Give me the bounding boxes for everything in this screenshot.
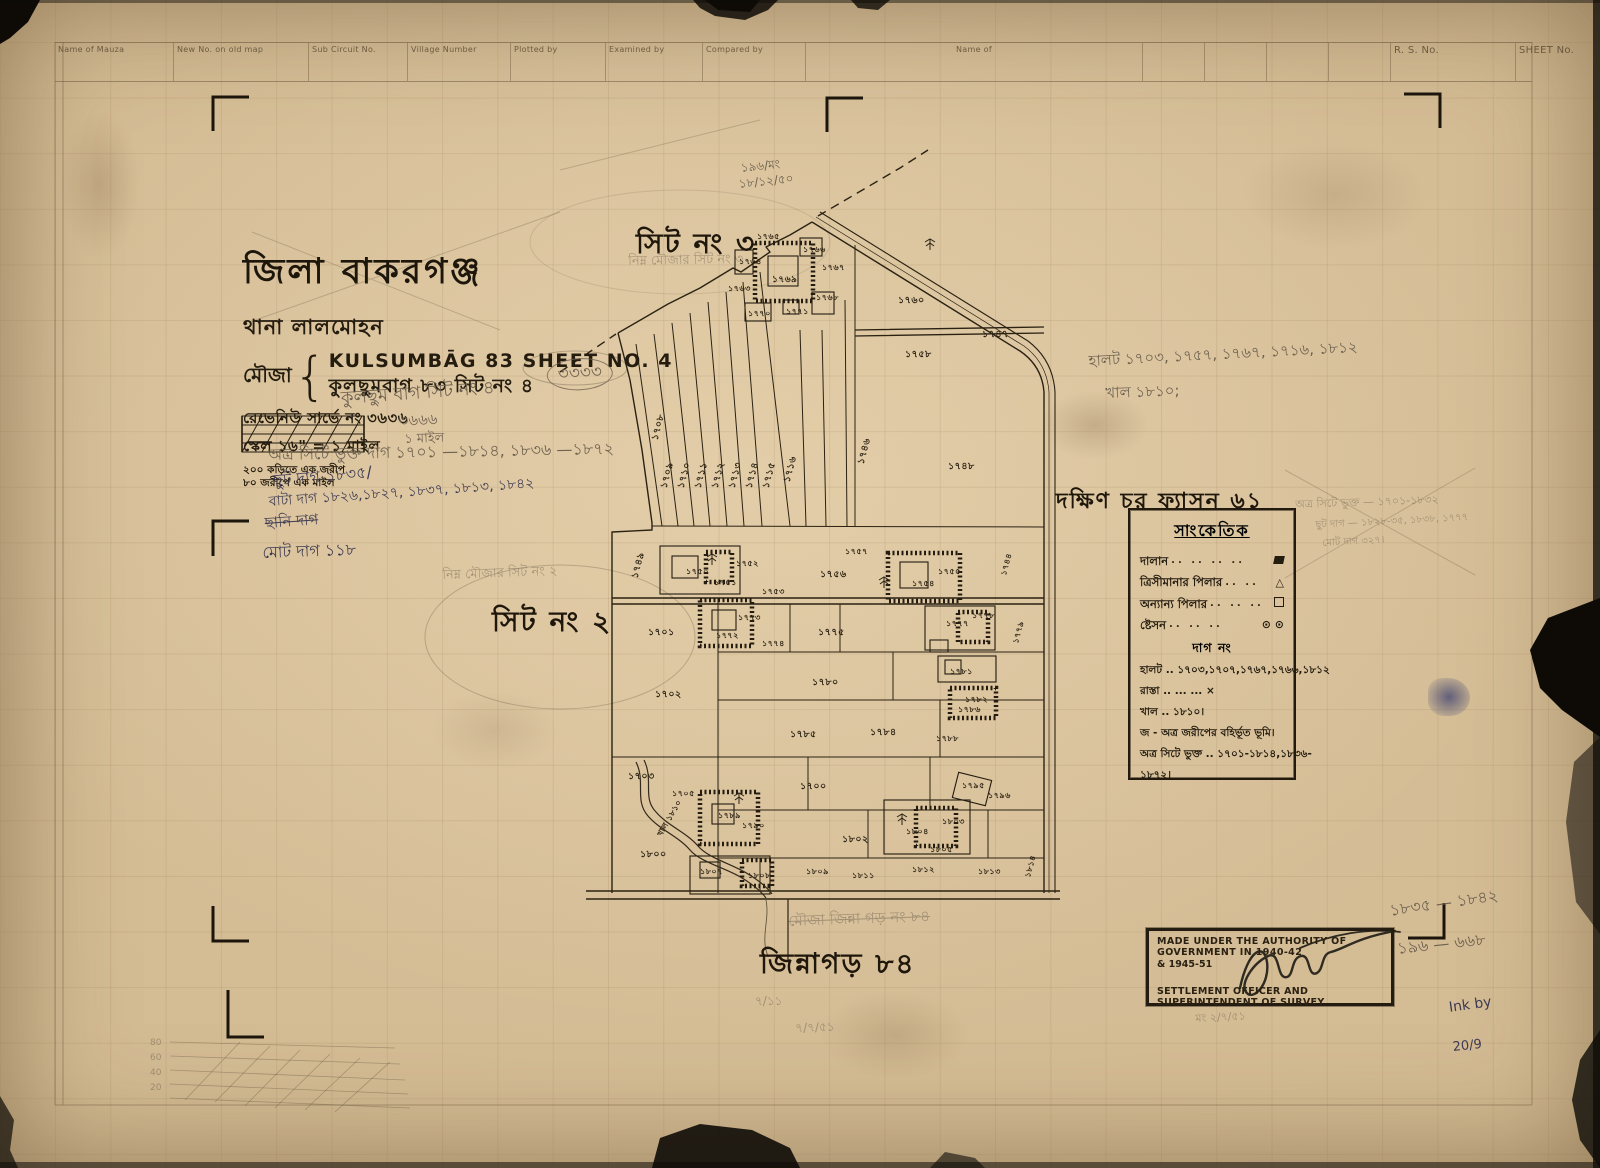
plot-number: ১৭১৬ — [781, 455, 802, 485]
legend-row-label: ষ্টেসন — [1140, 615, 1166, 636]
plot-number: ১৭৪৯ — [629, 551, 650, 581]
plot-number: খাল ১৮১০ — [655, 798, 687, 840]
handwritten-note: ১৯৬ — ৬৬৮ — [1396, 927, 1487, 963]
handwritten-note: খাল ১৮১০; — [1105, 379, 1180, 407]
plot-number: ১৭৭৮ — [972, 610, 995, 623]
handwritten-note: মৌজা জিন্না গড় নং ৮৪ — [788, 905, 930, 935]
handwritten-note: ৭/১১ — [755, 993, 782, 1013]
plot-number: ১৭৬৭ — [822, 262, 845, 275]
plot-number: ১৭৮৪ — [870, 726, 897, 741]
plot-number: ১৭৫৪ — [912, 578, 935, 591]
plot-number: ১৭৫৩ — [762, 586, 785, 599]
form-column-header: Village Number — [408, 43, 511, 81]
handwritten-note: ছানি দাগ — [264, 508, 319, 537]
plot-number: ১৭৭২ — [716, 630, 739, 643]
pillar-square-icon — [1274, 597, 1284, 607]
plot-number: ১৭৬৬ — [803, 244, 826, 257]
plot-number: ১৮১১ — [852, 870, 875, 883]
plot-number: ১৮০৮ — [748, 870, 771, 883]
legend-row: ত্রিসীমানার পিলার.. ..△ — [1140, 572, 1284, 593]
sketch-scale-label: 40 — [150, 1068, 161, 1078]
plot-number: ১৮০৫ — [930, 844, 953, 857]
mouza-label: মৌজা — [243, 361, 292, 394]
legend-row-label: দালান — [1140, 551, 1168, 572]
handwritten-note: মোট দাগ ১১৮ — [262, 537, 356, 567]
plot-number: ১৭৫৭ — [845, 546, 868, 559]
building-symbol-icon — [1274, 551, 1284, 571]
plot-number: ১৭৭৩ — [738, 612, 761, 625]
legend-row: দালান.. .. .. .. — [1140, 551, 1284, 572]
plot-number: ১৭৪৪ — [998, 552, 1016, 577]
plot-number: ১৭৬৯ — [772, 272, 797, 287]
sketch-scale-label: 20 — [150, 1083, 161, 1093]
form-column-header: Name of — [806, 43, 1143, 81]
plot-number: ১৮১২ — [912, 864, 935, 877]
adjacent-sheet-label-west: সিট নং ২ — [492, 600, 612, 647]
legend-symbol-rows: দালান.. .. .. ..ত্রিসীমানার পিলার.. ..△অ… — [1140, 551, 1284, 636]
plot-number: ১৮০৩ — [942, 816, 965, 829]
plot-number: ১৮০৭ — [700, 866, 723, 879]
handwritten-note: ১৮/১২/৫০ — [738, 170, 795, 196]
plot-number: ১৭৫৮ — [905, 348, 932, 363]
authority-stamp-box: MADE UNDER THE AUTHORITY OF GOVERNMENT I… — [1146, 928, 1394, 1006]
plot-number: ১৭০৩ — [628, 770, 655, 785]
plot-number: ১৭৭০ — [748, 308, 771, 321]
handwritten-note: হালট ১৭০৩, ১৭৫৭, ১৭৬৭, ১৭১৬, ১৮১২ — [1088, 336, 1358, 375]
legend-text-row: ১৮৭২। — [1140, 765, 1284, 786]
form-column-header: Examined by — [606, 43, 703, 81]
form-column-empty — [1143, 43, 1205, 81]
legend-text-row: অত্র সিটে ভুক্ত .. ১৭০১-১৮১৪,১৮৩৬- — [1140, 744, 1284, 765]
stamp-line-2: & 1945-51 — [1157, 959, 1383, 970]
paper-stain — [1240, 140, 1430, 250]
plot-number: ১৮১৩ — [978, 866, 1001, 879]
paper-stain — [430, 690, 560, 770]
plot-number: ১৭০০ — [800, 780, 827, 795]
legend-row-leader: .. .. .. .. — [1168, 552, 1274, 571]
plot-number: ১৭৬৫ — [757, 231, 780, 244]
stamp-line-1: MADE UNDER THE AUTHORITY OF GOVERNMENT I… — [1157, 936, 1383, 958]
form-column-header: Sub Circuit No. — [309, 43, 408, 81]
handwritten-note: অত্র সিটে ভুক্ত — ১৭০১-১৮৩২ — [1295, 491, 1439, 515]
plot-number: ১৭৬৮ — [816, 292, 839, 305]
plot-number: ১৭৭১ — [786, 306, 809, 319]
form-column-header: Compared by — [703, 43, 806, 81]
scanned-survey-map-sheet: Name of MauzaNew No. on old mapSub Circu… — [0, 0, 1600, 1168]
building-icon — [1273, 556, 1285, 564]
plot-number: ১৭৫০ — [686, 566, 709, 579]
legend-box: সাংকেতিক দালান.. .. .. ..ত্রিসীমানার পিল… — [1128, 508, 1296, 780]
legend-row-leader: .. .. .. — [1166, 616, 1262, 635]
pencil-scale-sketch — [170, 1042, 410, 1112]
handwritten-note: ১৮৩৫ — ১৮৪২ — [1388, 883, 1500, 925]
square-symbol-icon — [1274, 594, 1284, 614]
revenue-survey-no: রেভেনিউ সার্ভে নং ৩৬৩৬ — [243, 407, 673, 432]
plot-number: ১৭৭৫ — [818, 626, 845, 641]
plot-number: ১৭৬৩ — [728, 283, 751, 296]
legend-text-rows: হালট .. ১৭০৩,১৭০৭,১৭৬৭,১৭৬৬,১৮১২রাস্তা .… — [1140, 660, 1284, 786]
legend-row-leader: .. .. — [1222, 574, 1275, 593]
brace-glyph: { — [294, 354, 327, 401]
paper-stain — [60, 110, 140, 260]
plot-number: ১৭৪৬ — [855, 437, 876, 467]
handwritten-note: মোট দাগ ৩২৭। — [1322, 533, 1385, 553]
sketch-scale-label: 60 — [150, 1053, 161, 1063]
paper-stain — [820, 990, 970, 1080]
form-column-empty — [1267, 43, 1329, 81]
plot-number: ১৭৪৮ — [948, 460, 975, 475]
plot-number: ১৭৪৭ — [982, 328, 1009, 343]
legend-row: অন্যান্য পিলার.. .. .. — [1140, 594, 1284, 615]
handwritten-note: 20/9 — [1452, 1037, 1483, 1055]
plot-number: ১৭৯০ — [742, 820, 765, 833]
district-name: জিলা বাকরগঞ্জ — [243, 244, 673, 303]
plot-number: ১৮০৪ — [906, 826, 929, 839]
legend-text-row: খাল .. ১৮১০। — [1140, 702, 1284, 723]
plot-number: ১৮০০ — [640, 848, 667, 863]
adjacent-mouza-label-south: জিন্নাগড় ৮৪ — [760, 942, 916, 989]
plot-number: ১৭০১ — [648, 626, 675, 641]
plot-number: ১৭৭৪ — [762, 638, 785, 651]
form-column-empty — [1205, 43, 1267, 81]
legend-row-label: অন্যান্য পিলার — [1140, 594, 1207, 615]
form-column-empty — [1329, 43, 1391, 81]
handwritten-note: নিম্ন মৌজার সিট নং ৩ — [628, 250, 744, 273]
legend-text-row: রাস্তা .. ... ... × — [1140, 681, 1284, 702]
stamp-line-3: SETTLEMENT OFFICER AND SUPERINTENDENT OF… — [1157, 986, 1383, 1008]
plot-number: ১৭৭৭ — [946, 618, 969, 631]
sketch-scale-label: 80 — [150, 1038, 161, 1048]
legend-row: ষ্টেসন.. .. ..⊙ ⊙ — [1140, 615, 1284, 636]
legend-text-row: জ - অত্র জরীপের বহির্ভূত ভূমি। — [1140, 723, 1284, 744]
printed-form-header: Name of MauzaNew No. on old mapSub Circu… — [55, 42, 1532, 82]
plot-number: ১৭৮৮ — [936, 733, 959, 746]
plot-number: ১৭৮৫ — [790, 728, 817, 743]
legend-row-label: ত্রিসীমানার পিলার — [1140, 572, 1222, 593]
plot-number: ১৮০৯ — [806, 866, 829, 879]
plot-number: ১৮০২ — [842, 833, 869, 848]
station-symbol-icon: ⊙ ⊙ — [1262, 615, 1284, 635]
handwritten-note: ৭/৭/৫১ — [795, 1019, 835, 1040]
form-column-rs_no: R. S. No. — [1391, 43, 1516, 81]
form-column-header: New No. on old map — [174, 43, 309, 81]
tree-symbols — [707, 239, 935, 825]
form-column-sheet_no: SHEET No. — [1516, 43, 1600, 81]
plot-number: ১৭৮১ — [950, 666, 973, 679]
plot-number: ১৭৮৯ — [718, 810, 741, 823]
form-column-header: Plotted by — [511, 43, 606, 81]
mouza-name-english: KULSUMBĀG 83 SHEET NO. 4 — [329, 350, 673, 372]
handwritten-note: ছুট দাগ — ১৮২৮-৩৫, ১৮৩৮, ১৭৭৭ — [1315, 510, 1469, 535]
triangle-symbol-icon: △ — [1276, 573, 1284, 593]
plot-number: ১৭৫২ — [736, 558, 759, 571]
legend-title: সাংকেতিক — [1140, 518, 1284, 545]
plot-number: ১৭৫৫ — [938, 566, 961, 579]
plot-number: ১৭৯৫ — [962, 780, 985, 793]
handwritten-note: মং ২/৭/৫১ — [1195, 1007, 1246, 1029]
legend-row-leader: .. .. .. — [1207, 595, 1274, 614]
plot-number: ১৭৯৬ — [988, 790, 1011, 803]
plot-number: ১৭৮০ — [812, 676, 839, 691]
plot-number: ১৭৫৬ — [820, 568, 847, 583]
legend-dag-heading: দাগ নং — [1140, 640, 1284, 660]
plot-number: ১৭৬০ — [898, 294, 925, 309]
form-column-header: Name of Mauza — [55, 43, 174, 81]
ink-blot — [1428, 678, 1470, 716]
thana-name: থানা লালমোহন — [243, 311, 673, 346]
plot-number: ১৭৫১ — [714, 577, 737, 590]
handwritten-note: নিম্ন মৌজার সিট নং ২ — [442, 562, 558, 587]
plot-number: ১৭৮৬ — [958, 704, 981, 717]
legend-text-row: হালট .. ১৭০৩,১৭০৭,১৭৬৭,১৭৬৬,১৮১২ — [1140, 660, 1284, 681]
plot-number: ১৭০২ — [655, 688, 682, 703]
plot-number: ১৭৭৯ — [1010, 620, 1028, 645]
handwritten-note: Ink by — [1448, 994, 1493, 1016]
plot-number: ১৮১৪ — [1022, 854, 1040, 879]
